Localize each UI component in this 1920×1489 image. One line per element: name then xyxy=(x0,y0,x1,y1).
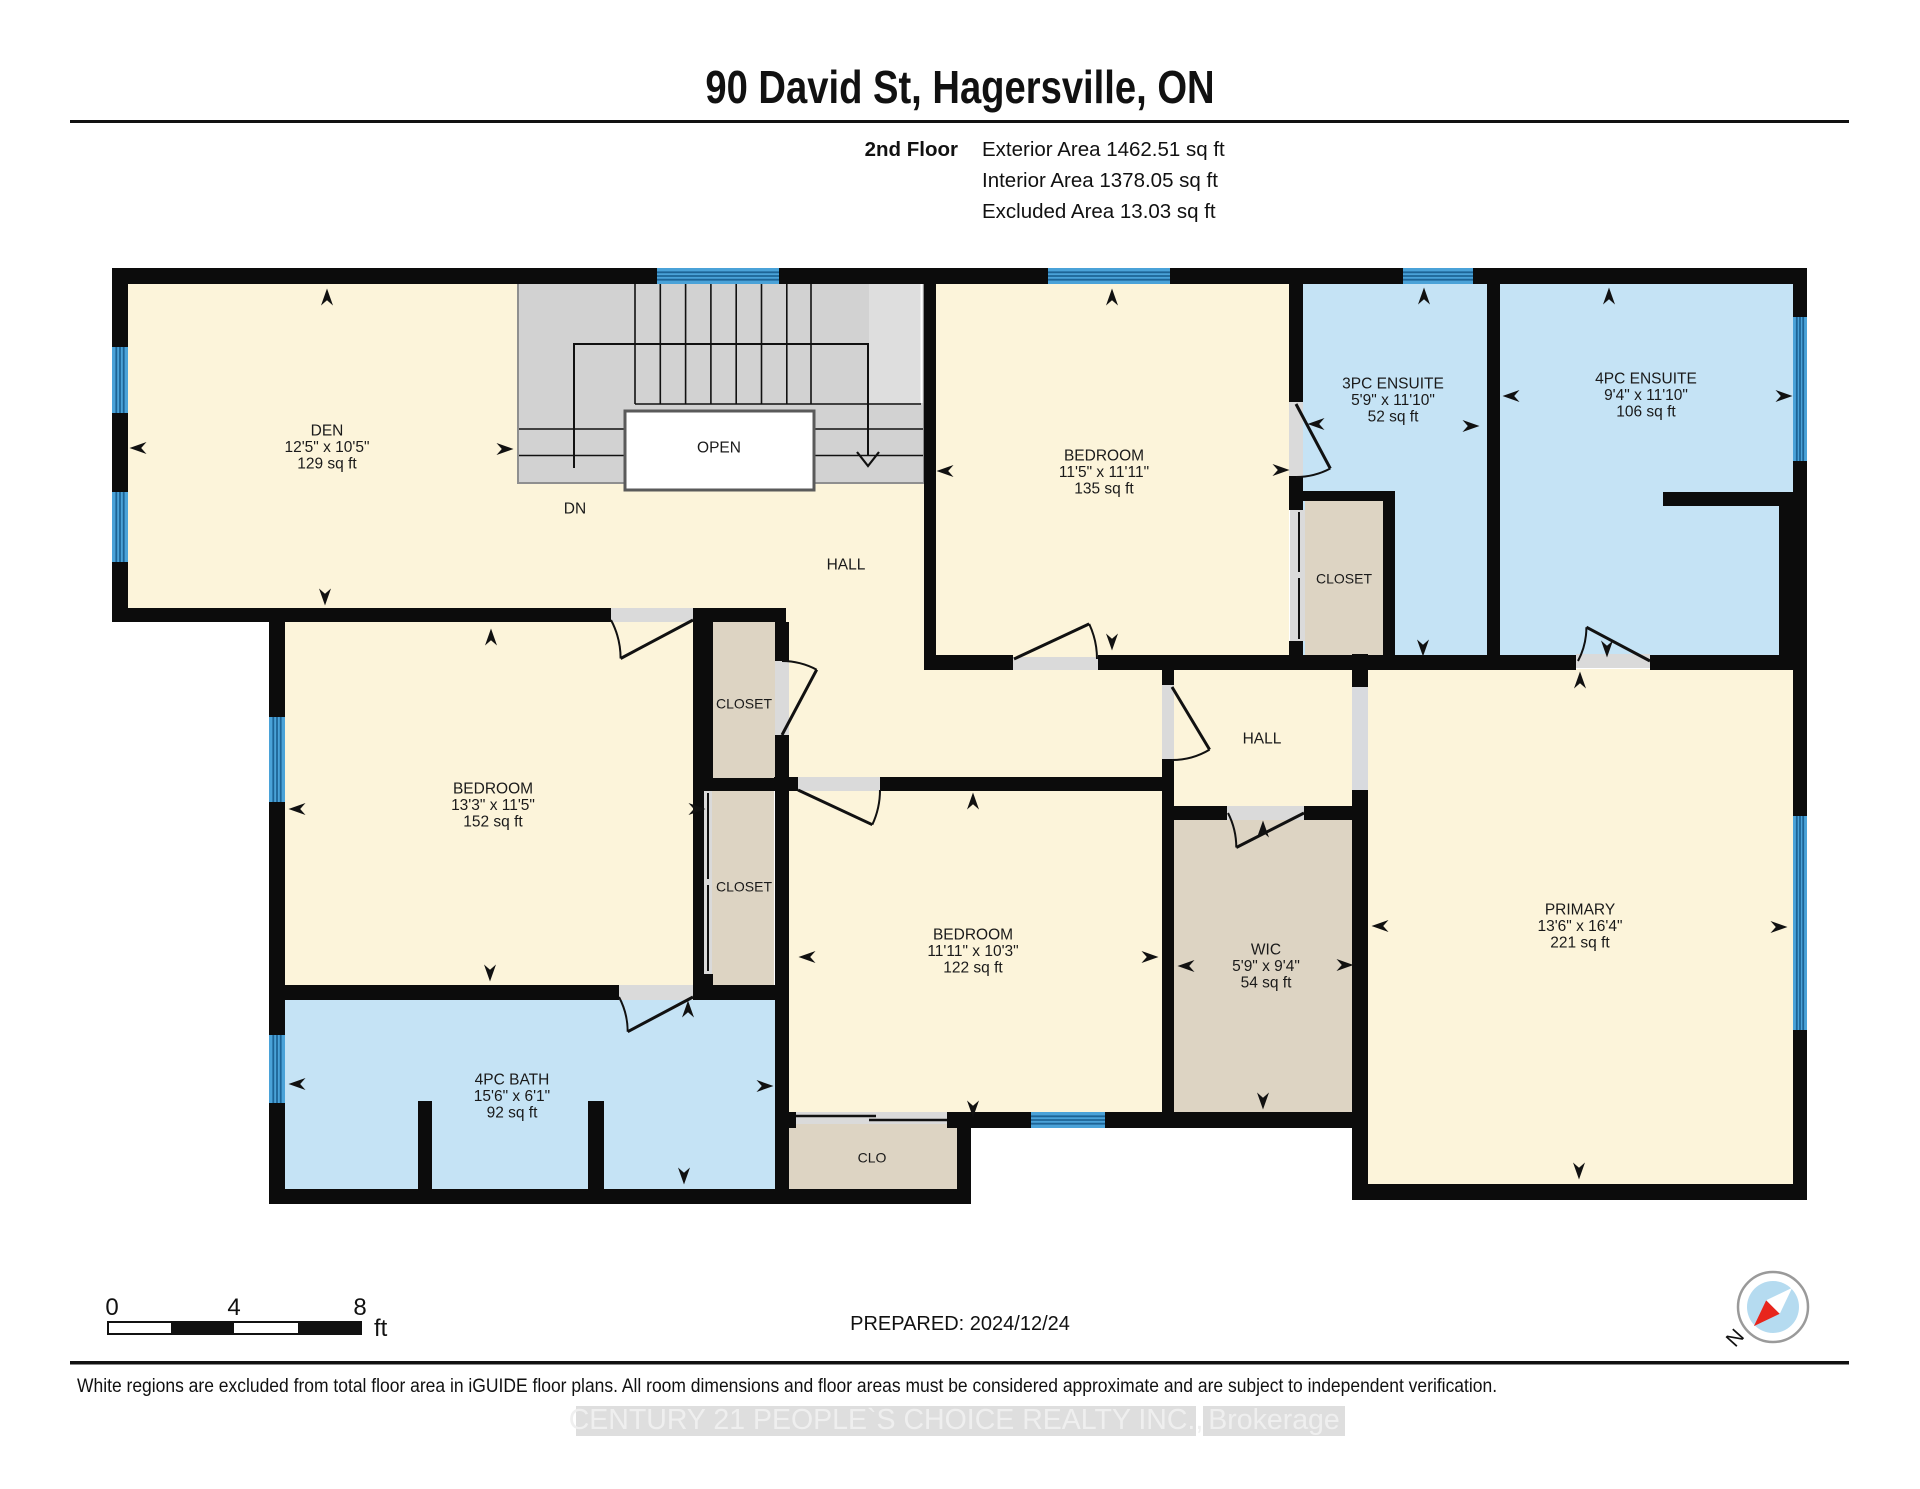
svg-text:Brokerage: Brokerage xyxy=(1208,1404,1340,1436)
svg-text:15'6" x 6'1": 15'6" x 6'1" xyxy=(474,1088,550,1105)
svg-text:11'5" x 11'11": 11'5" x 11'11" xyxy=(1059,464,1149,481)
svg-text:54 sq ft: 54 sq ft xyxy=(1241,975,1293,992)
svg-text:13'6" x 16'4": 13'6" x 16'4" xyxy=(1537,918,1622,935)
svg-text:BEDROOM: BEDROOM xyxy=(453,781,533,798)
svg-text:DN: DN xyxy=(564,501,586,518)
svg-text:CLOSET: CLOSET xyxy=(716,696,772,712)
svg-text:DEN: DEN xyxy=(311,423,344,440)
svg-text:52 sq ft: 52 sq ft xyxy=(1368,409,1420,426)
svg-text:ft: ft xyxy=(374,1315,388,1342)
svg-text:9'4" x 11'10": 9'4" x 11'10" xyxy=(1604,387,1688,404)
svg-text:90 David St, Hagersville, ON: 90 David St, Hagersville, ON xyxy=(705,62,1214,113)
svg-text:129 sq ft: 129 sq ft xyxy=(297,456,357,473)
svg-text:2nd Floor: 2nd Floor xyxy=(865,138,958,161)
svg-text:Excluded Area 13.03 sq ft: Excluded Area 13.03 sq ft xyxy=(982,200,1216,223)
svg-text:4PC BATH: 4PC BATH xyxy=(475,1072,550,1089)
svg-text:WIC: WIC xyxy=(1251,942,1281,959)
svg-text:HALL: HALL xyxy=(827,557,866,574)
svg-text:CLO: CLO xyxy=(858,1150,887,1166)
svg-text:PRIMARY: PRIMARY xyxy=(1545,902,1615,919)
svg-text:13'3" x 11'5": 13'3" x 11'5" xyxy=(451,797,535,814)
svg-text:4: 4 xyxy=(227,1294,240,1321)
svg-text:CLOSET: CLOSET xyxy=(716,879,772,895)
svg-text:8: 8 xyxy=(353,1294,366,1321)
svg-text:135 sq ft: 135 sq ft xyxy=(1074,481,1134,498)
svg-text:122 sq ft: 122 sq ft xyxy=(943,960,1003,977)
svg-text:12'5" x 10'5": 12'5" x 10'5" xyxy=(284,439,369,456)
svg-text:OPEN: OPEN xyxy=(697,440,741,457)
svg-text:5'9" x 11'10": 5'9" x 11'10" xyxy=(1351,392,1435,409)
svg-text:Interior Area 1378.05 sq ft: Interior Area 1378.05 sq ft xyxy=(982,169,1218,192)
svg-text:5'9" x 9'4": 5'9" x 9'4" xyxy=(1232,958,1300,975)
svg-text:4PC ENSUITE: 4PC ENSUITE xyxy=(1595,371,1697,388)
svg-text:BEDROOM: BEDROOM xyxy=(1064,448,1144,465)
svg-text:3PC ENSUITE: 3PC ENSUITE xyxy=(1342,376,1444,393)
svg-text:92 sq ft: 92 sq ft xyxy=(487,1105,539,1122)
svg-text:White regions are excluded fro: White regions are excluded from total fl… xyxy=(77,1374,1497,1396)
svg-text:PREPARED: 2024/12/24: PREPARED: 2024/12/24 xyxy=(850,1313,1070,1335)
svg-text:152 sq ft: 152 sq ft xyxy=(463,814,523,831)
svg-text:HALL: HALL xyxy=(1243,731,1282,748)
svg-text:CENTURY 21 PEOPLE`S CHOICE REA: CENTURY 21 PEOPLE`S CHOICE REALTY INC., xyxy=(569,1404,1204,1436)
svg-text:221 sq ft: 221 sq ft xyxy=(1550,935,1610,952)
svg-text:BEDROOM: BEDROOM xyxy=(933,927,1013,944)
svg-text:11'11" x 10'3": 11'11" x 10'3" xyxy=(927,943,1018,960)
svg-text:106 sq ft: 106 sq ft xyxy=(1616,404,1676,421)
svg-text:Exterior Area 1462.51 sq ft: Exterior Area 1462.51 sq ft xyxy=(982,138,1225,161)
svg-text:0: 0 xyxy=(105,1294,118,1321)
svg-text:CLOSET: CLOSET xyxy=(1316,571,1372,587)
